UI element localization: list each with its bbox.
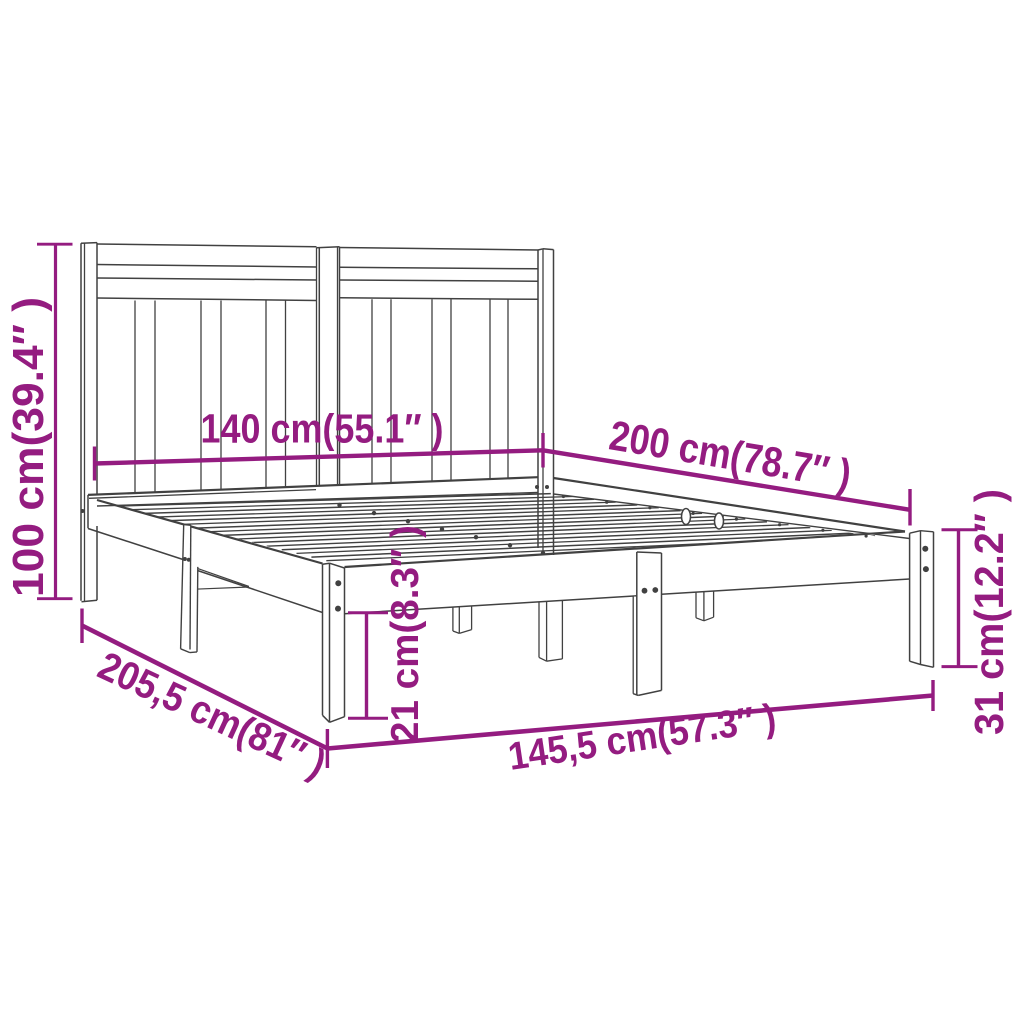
svg-text:21 cm(8.3″ ): 21 cm(8.3″ ) — [384, 525, 427, 743]
svg-text:100 cm(39.4″ ): 100 cm(39.4″ ) — [4, 297, 53, 597]
svg-text:31 cm(12.2″ ): 31 cm(12.2″ ) — [966, 489, 1012, 735]
svg-text:140 cm(55.1″ ): 140 cm(55.1″ ) — [201, 406, 444, 452]
